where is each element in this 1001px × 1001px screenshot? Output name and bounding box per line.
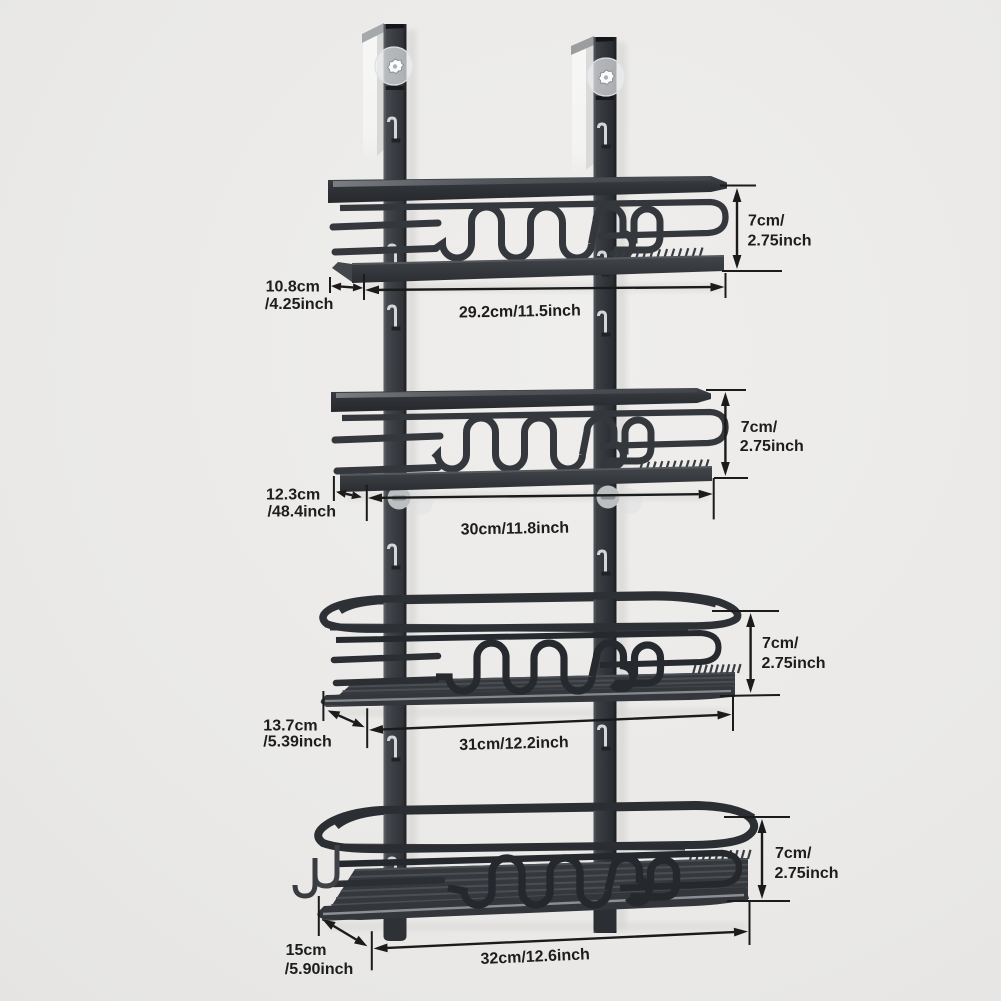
svg-text:/48.4inch: /48.4inch [268, 503, 336, 520]
svg-text:31cm/12.2inch: 31cm/12.2inch [459, 734, 569, 754]
svg-text:13.7cm: 13.7cm [263, 718, 317, 735]
svg-text:30cm/11.8inch: 30cm/11.8inch [460, 520, 569, 539]
svg-text:2.75inch: 2.75inch [762, 655, 826, 672]
svg-text:2.75inch: 2.75inch [740, 438, 804, 455]
svg-text:/4.25inch: /4.25inch [265, 296, 333, 313]
svg-text:15cm: 15cm [286, 942, 327, 959]
svg-text:7cm/: 7cm/ [741, 419, 778, 436]
svg-text:2.75inch: 2.75inch [748, 232, 812, 249]
svg-text:10.8cm: 10.8cm [266, 279, 320, 296]
svg-text:2.75inch: 2.75inch [775, 865, 839, 882]
svg-text:/5.90inch: /5.90inch [285, 961, 353, 978]
svg-text:7cm/: 7cm/ [762, 635, 799, 652]
svg-text:/5.39inch: /5.39inch [263, 734, 331, 751]
svg-text:29.2cm/11.5inch: 29.2cm/11.5inch [459, 302, 581, 321]
svg-text:7cm/: 7cm/ [775, 845, 812, 862]
svg-text:7cm/: 7cm/ [748, 212, 785, 229]
svg-text:12.3cm: 12.3cm [266, 487, 320, 504]
